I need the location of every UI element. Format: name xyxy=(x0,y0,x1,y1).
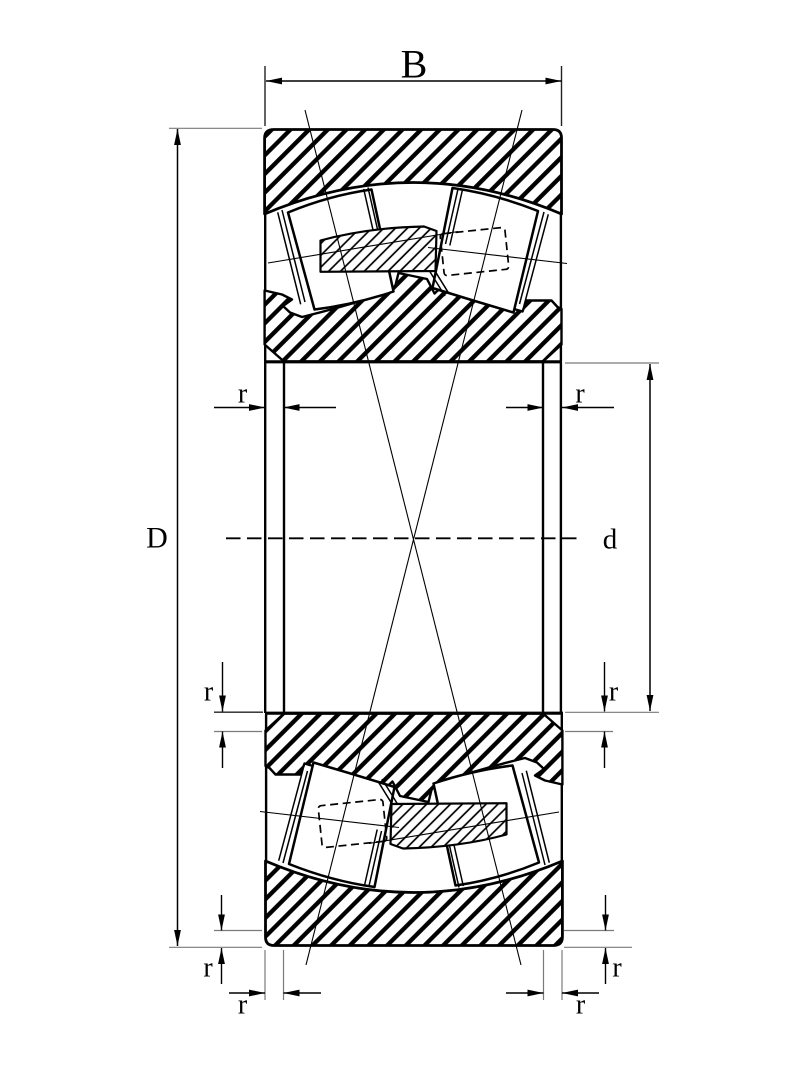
bearing-drawing: B D d r r r r xyxy=(0,0,800,1066)
label-chamfer-r: r xyxy=(204,677,214,708)
label-chamfer-r: r xyxy=(203,953,213,984)
arrow-up-icon xyxy=(218,948,225,964)
arrow-down-icon xyxy=(647,695,654,711)
dimension-r-mid-left xyxy=(219,662,226,768)
arrow-right-icon xyxy=(249,404,265,411)
dimension-r-mid-right xyxy=(601,662,608,768)
arrow-left-icon xyxy=(284,404,300,411)
label-chamfer-r: r xyxy=(576,990,586,1021)
dimension-r-bottom-right-v xyxy=(602,895,609,984)
arrow-right-icon xyxy=(528,404,544,411)
arrow-left-icon xyxy=(266,78,282,85)
label-chamfer-r: r xyxy=(609,677,619,708)
dimension-r-bottom-left-v xyxy=(218,895,225,984)
label-width-B: B xyxy=(401,42,428,87)
bearing-section-bottom xyxy=(260,713,563,945)
dimension-r-top-left xyxy=(214,404,336,411)
label-chamfer-r: r xyxy=(238,379,248,410)
arrow-up-icon xyxy=(601,732,608,748)
arrow-down-icon xyxy=(174,930,181,946)
arrow-right-icon xyxy=(249,990,265,997)
arrow-down-icon xyxy=(219,696,226,712)
arrow-up-icon xyxy=(174,129,181,145)
arrow-right-icon xyxy=(528,990,544,997)
arrow-down-icon xyxy=(218,915,225,931)
arrow-up-icon xyxy=(219,732,226,748)
arrow-left-icon xyxy=(284,990,300,997)
arrow-down-icon xyxy=(601,696,608,712)
arrow-right-icon xyxy=(546,78,562,85)
label-bore-diameter-d: d xyxy=(603,524,618,556)
label-outer-diameter-D: D xyxy=(146,522,168,555)
arrow-up-icon xyxy=(647,364,654,380)
label-chamfer-r: r xyxy=(612,953,622,984)
arrow-down-icon xyxy=(602,915,609,931)
bearing-section-top xyxy=(264,130,567,362)
label-chamfer-r: r xyxy=(575,379,585,410)
arrow-up-icon xyxy=(602,948,609,964)
label-chamfer-r: r xyxy=(238,990,248,1021)
dimension-d xyxy=(647,364,654,711)
dimension-D xyxy=(174,129,181,946)
